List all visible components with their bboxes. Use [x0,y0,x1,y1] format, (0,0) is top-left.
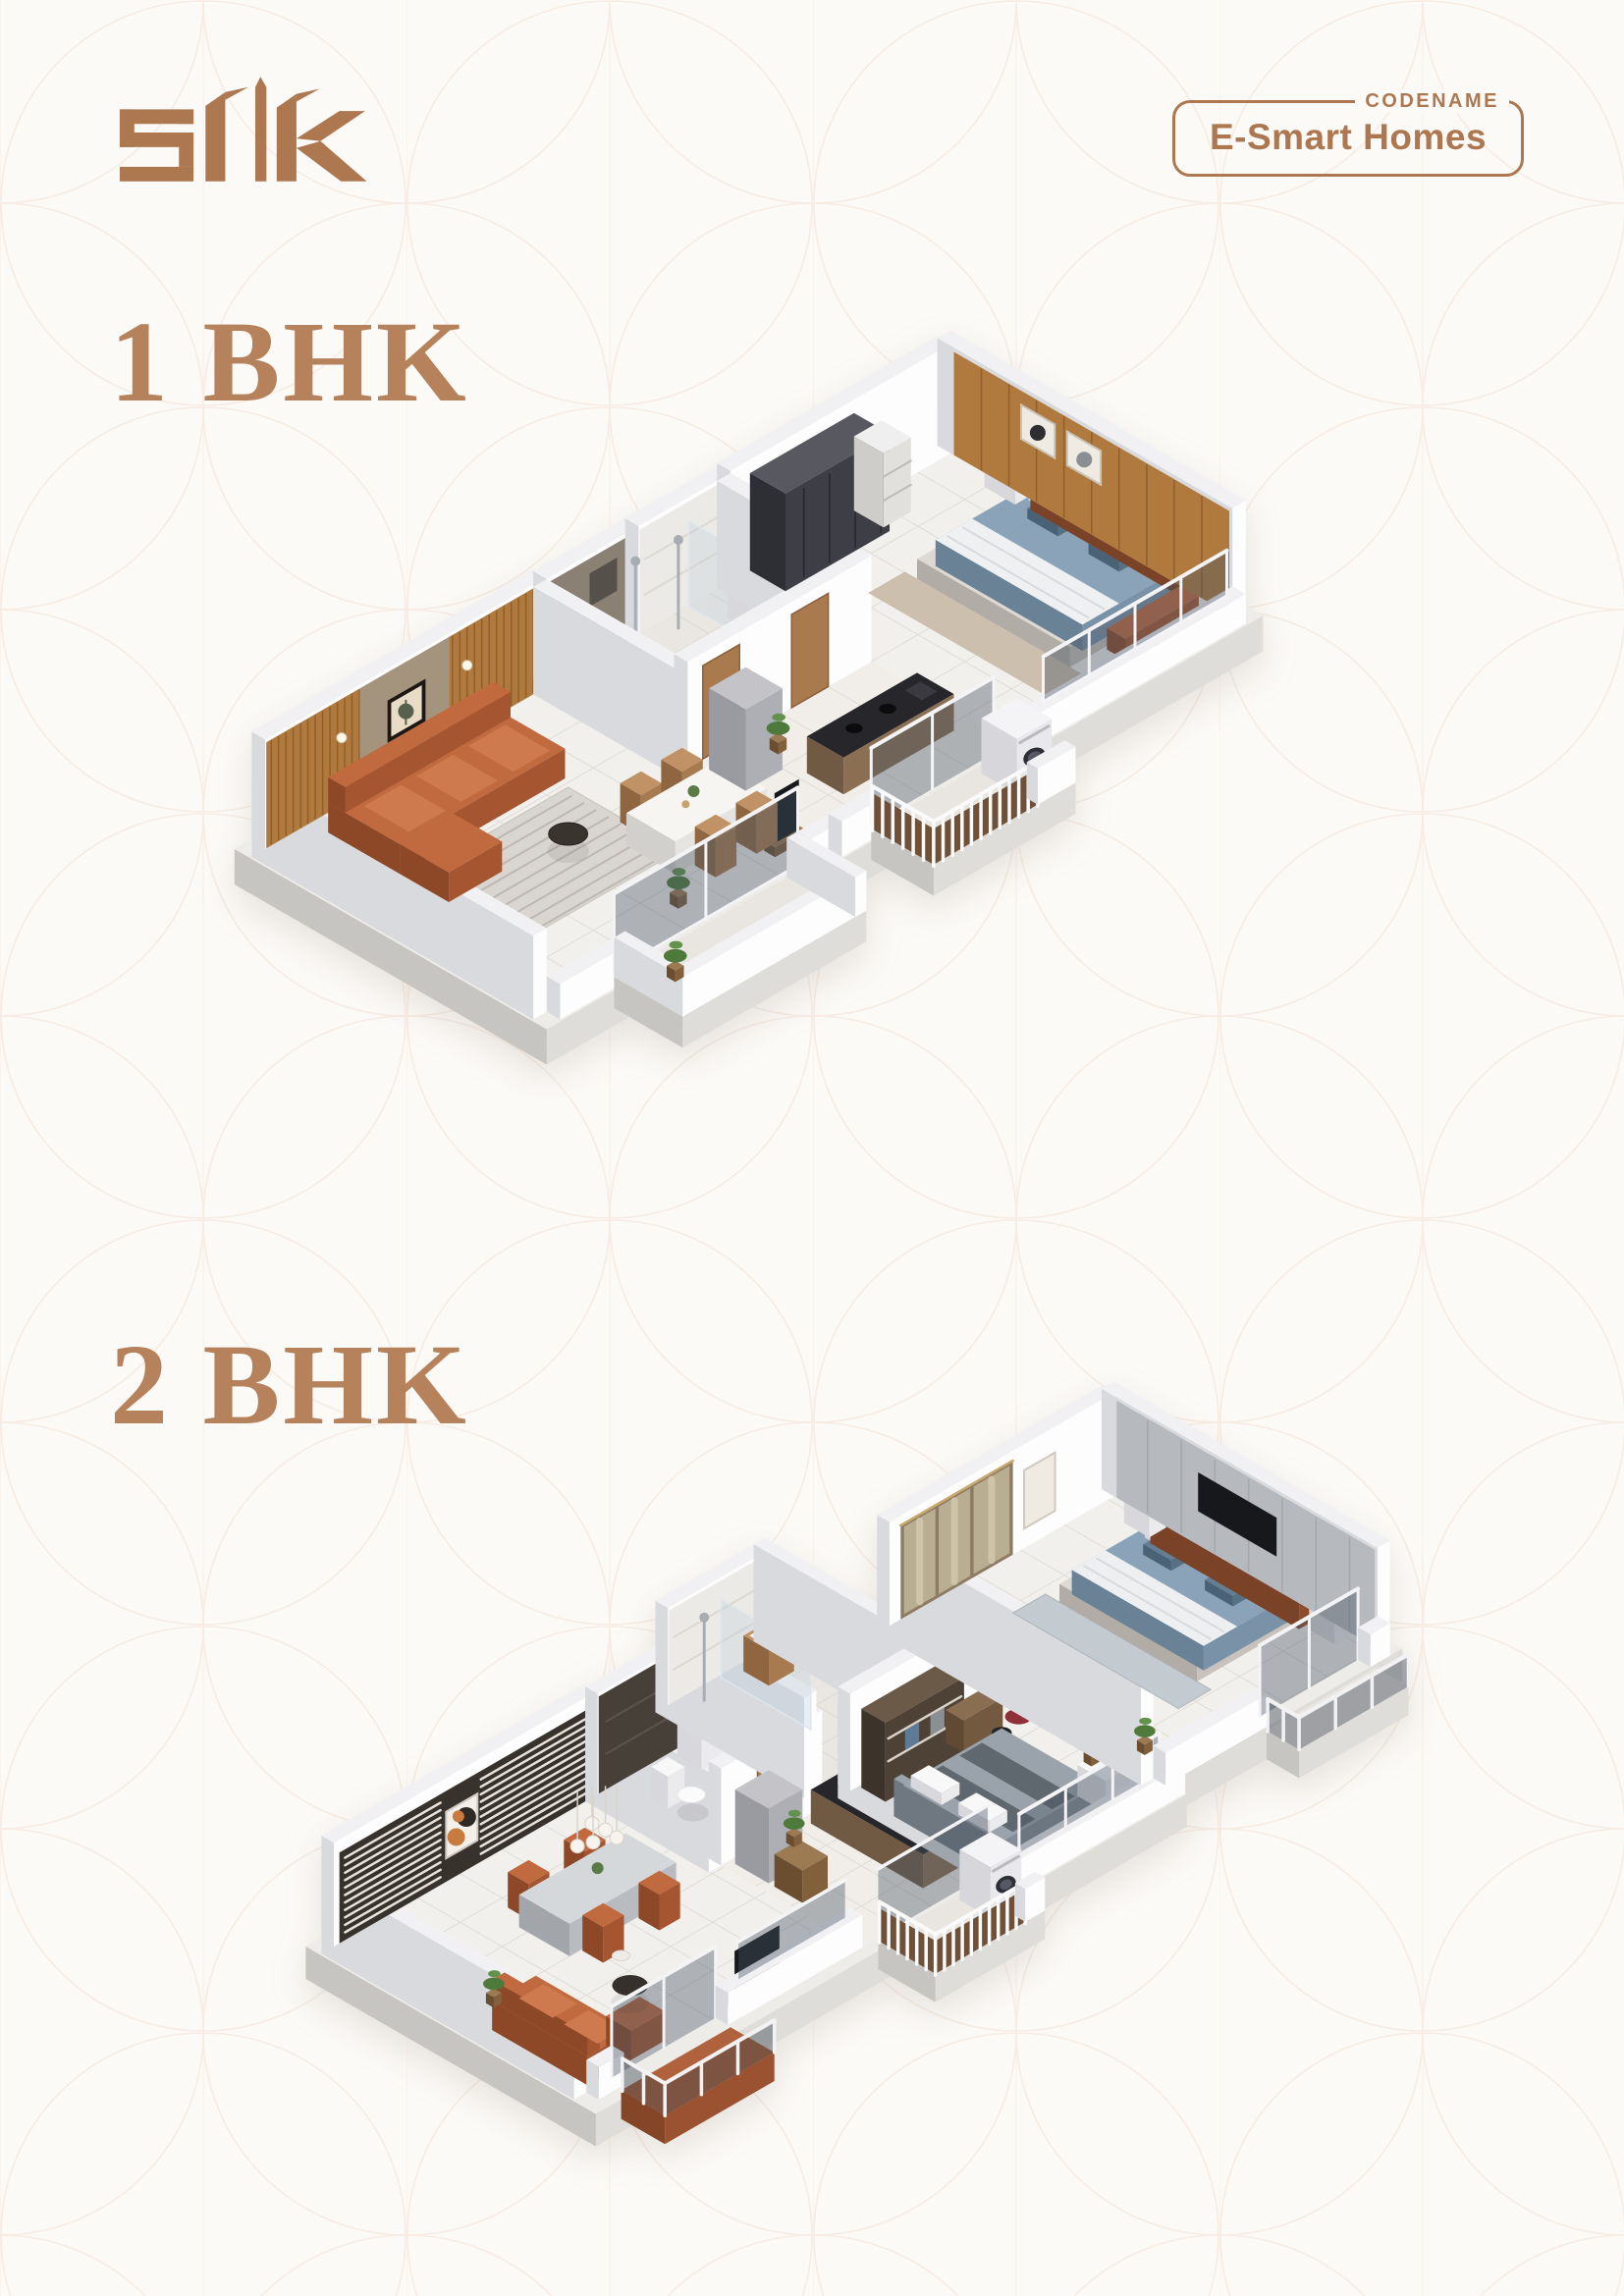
badge-title: E-Smart Homes [1175,103,1521,172]
brochure-page: CODENAME E-Smart Homes 1 BHK 2 BHK [0,0,1624,2296]
floor-plan-1bhk [226,324,1345,1188]
badge-eyebrow: CODENAME [1355,89,1509,113]
logo-letter-s [120,109,193,181]
logo-letter-l-tower [205,87,248,182]
logo-spire [255,77,266,182]
slk-logo [110,51,387,214]
floor-plan-2bhk [275,1382,1512,2167]
logo-letter-k [277,88,367,181]
codename-badge: CODENAME E-Smart Homes [1172,100,1524,177]
